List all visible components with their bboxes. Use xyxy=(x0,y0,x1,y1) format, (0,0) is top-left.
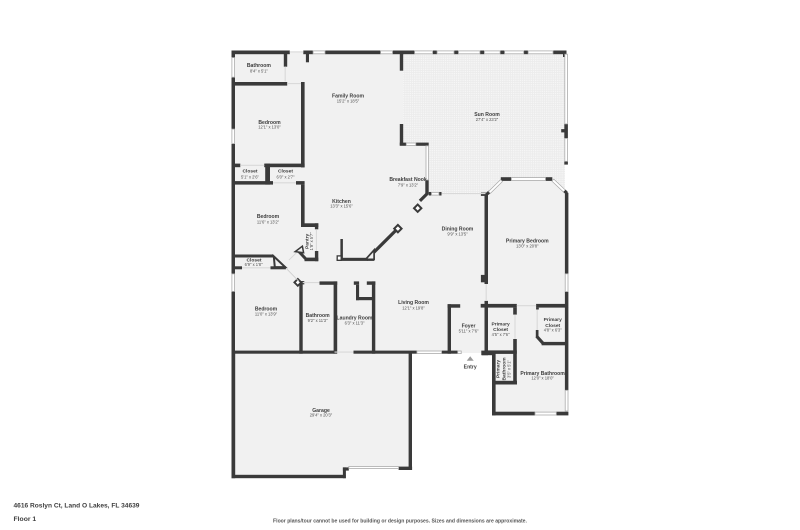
svg-text:11'0" x 13'9": 11'0" x 13'9" xyxy=(255,311,278,316)
svg-text:Floor plans/tour cannot be use: Floor plans/tour cannot be used for buil… xyxy=(273,519,527,525)
svg-text:9'9" x 13'5": 9'9" x 13'5" xyxy=(447,232,468,237)
svg-text:12'1" x 19'8": 12'1" x 19'8" xyxy=(402,306,425,311)
svg-text:Primary: Primary xyxy=(544,317,562,323)
svg-text:6'3" x 11'3": 6'3" x 11'3" xyxy=(345,321,365,326)
svg-text:7'9" x 13'2": 7'9" x 13'2" xyxy=(398,183,419,188)
svg-text:15'2" x 18'5": 15'2" x 18'5" xyxy=(337,99,360,104)
svg-text:5'1" x 2'6": 5'1" x 2'6" xyxy=(241,174,259,179)
svg-text:6'0" x 2'7": 6'0" x 2'7" xyxy=(277,174,295,179)
svg-text:13'3" x 15'6": 13'3" x 15'6" xyxy=(330,203,353,208)
svg-text:29'4" x 20'3": 29'4" x 20'3" xyxy=(310,412,333,417)
svg-text:1'9" x 5'7": 1'9" x 5'7" xyxy=(309,232,314,250)
svg-text:4'8" x 6'3": 4'8" x 6'3" xyxy=(544,328,562,333)
svg-text:12'1" x 13'0": 12'1" x 13'0" xyxy=(258,125,281,130)
svg-text:Primary: Primary xyxy=(495,360,501,378)
svg-text:27'4" x 23'2": 27'4" x 23'2" xyxy=(476,117,499,122)
svg-text:12'0" x 18'0": 12'0" x 18'0" xyxy=(531,376,554,381)
svg-text:Floor 1: Floor 1 xyxy=(14,516,37,523)
svg-text:5'11" x 7'6": 5'11" x 7'6" xyxy=(459,329,479,334)
svg-text:Primary: Primary xyxy=(491,321,509,327)
svg-text:13'0" x 20'8": 13'0" x 20'8" xyxy=(516,244,539,249)
svg-text:Entry: Entry xyxy=(464,365,477,371)
svg-text:4616 Roslyn Ct, Land O Lakes,: 4616 Roslyn Ct, Land O Lakes, FL 34639 xyxy=(14,503,140,510)
svg-text:9'2" x 11'3": 9'2" x 11'3" xyxy=(308,318,328,323)
svg-text:3'5" x 5'1": 3'5" x 5'1" xyxy=(507,360,512,378)
svg-text:6'9" x 1'8": 6'9" x 1'8" xyxy=(245,262,263,267)
svg-text:4'5" x 7'6": 4'5" x 7'6" xyxy=(492,332,510,337)
svg-text:11'6" x 13'2": 11'6" x 13'2" xyxy=(257,219,280,224)
svg-text:8'4" x 5'1": 8'4" x 5'1" xyxy=(250,69,268,74)
